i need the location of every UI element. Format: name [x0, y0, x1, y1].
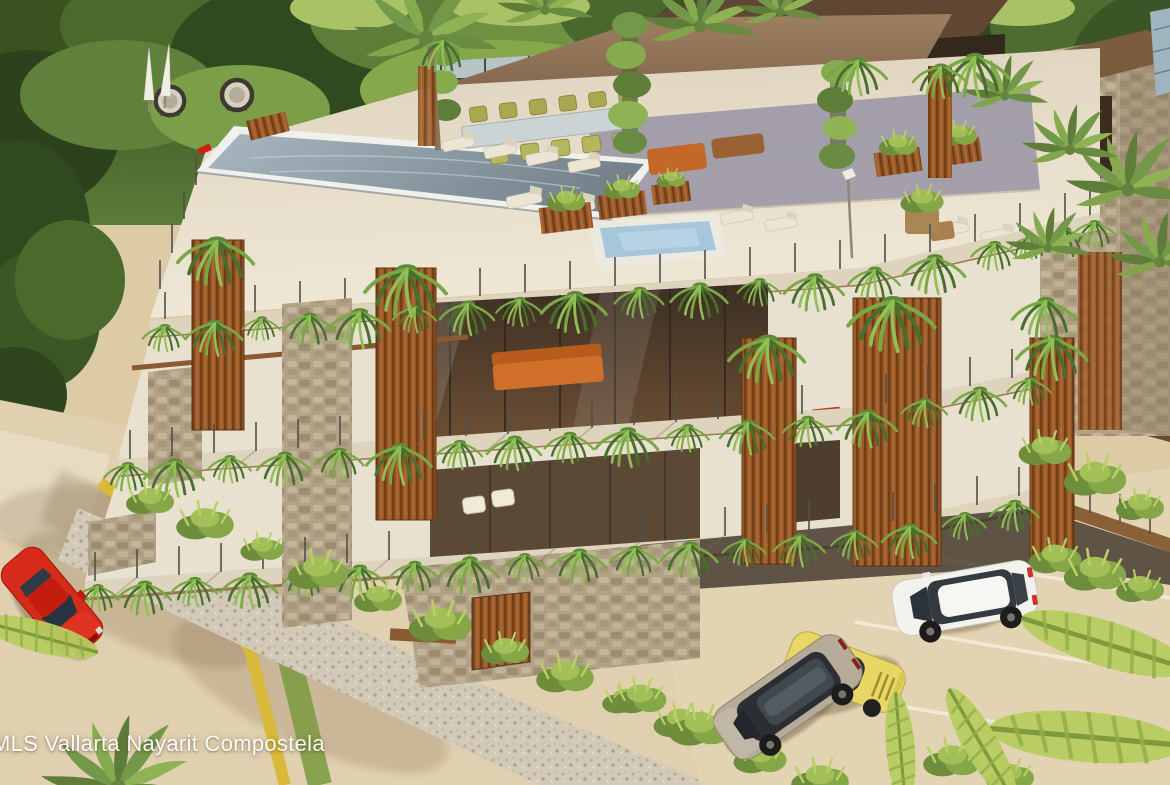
architectural-rendering-scene: MLS Vallarta Nayarit Compostela	[0, 0, 1170, 785]
rendering-canvas	[0, 0, 1170, 785]
watermark-text: MLS Vallarta Nayarit Compostela	[0, 731, 325, 757]
